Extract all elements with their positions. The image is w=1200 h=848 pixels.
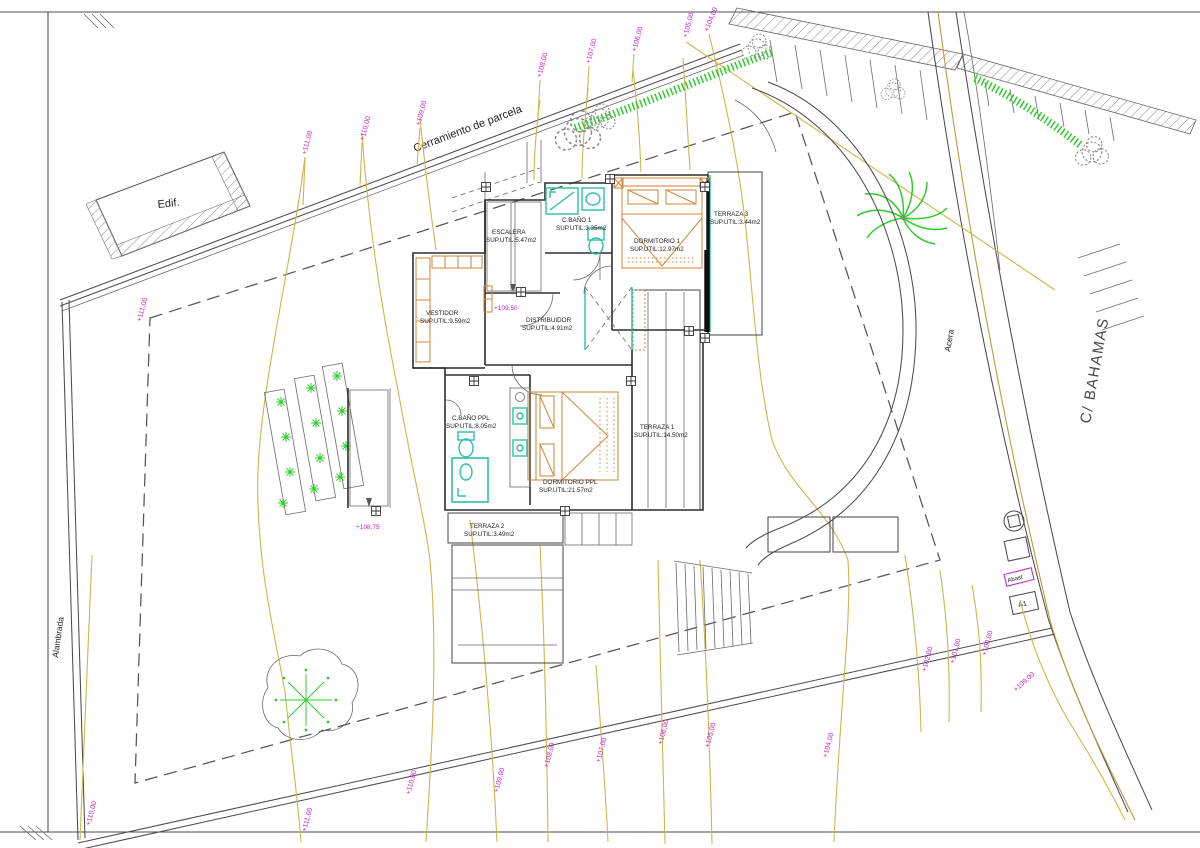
- room-name: VESTIDOR: [426, 310, 459, 317]
- elevation-label: +110,00: [85, 800, 98, 826]
- room-area: SUP.UTIL:8.05m2: [446, 423, 497, 430]
- elevation-label: +109,00: [1013, 671, 1037, 693]
- neighbor-building: Edif.: [86, 152, 250, 259]
- floor-level-label: +108,75: [356, 524, 380, 531]
- street-name-label: C/ BAHAMAS: [1077, 316, 1112, 425]
- manhole-icon: [1004, 511, 1024, 531]
- plant-icon: [285, 467, 295, 477]
- perimeter-fence: Cerramiento de parcela Alambrada: [50, 44, 1055, 848]
- platform: [768, 517, 830, 552]
- utility-box-icon: [1004, 537, 1030, 561]
- room-name: DORMITORIO 1: [634, 238, 681, 245]
- door-arcs: [446, 253, 612, 415]
- bed-icon: [528, 392, 618, 480]
- wardrobe: [416, 256, 492, 362]
- wall-marker: [606, 175, 615, 184]
- street-ticks: [1078, 244, 1144, 330]
- plant-icon: [332, 371, 342, 381]
- frame-hatch-bottomleft: [20, 826, 52, 840]
- plant-icon: [281, 432, 291, 442]
- contour-labels-bottom: +110,00 +111,00 +110,00 +109,00 +108,00 …: [85, 719, 835, 833]
- fence-west: [62, 300, 85, 840]
- elevation-label: +107,00: [585, 38, 598, 65]
- interior-stair: [487, 202, 541, 292]
- tree-icon: [556, 111, 601, 150]
- room-area: SUP.UTIL:4.91m2: [522, 325, 573, 332]
- elevation-label: +108,00: [543, 742, 556, 769]
- elevation-label: +111,00: [301, 130, 314, 156]
- room-area: SUP.UTIL:3.49m2: [464, 531, 515, 538]
- plant-icon: [278, 498, 288, 508]
- bed-icon: [614, 178, 709, 268]
- elevation-label: +105,00: [704, 722, 717, 749]
- elevation-label: +102,00: [921, 646, 934, 673]
- terrace-2: [448, 513, 563, 543]
- plant-icon: [311, 418, 321, 428]
- setback-line: [135, 112, 940, 783]
- elevation-label: +106,00: [631, 26, 644, 53]
- slope-ramp: [674, 561, 753, 655]
- elevation-label: +109,00: [493, 767, 506, 794]
- wall-marker: [482, 183, 491, 192]
- house-plan: ESCALERA SUP.UTIL:5.47m2 C.BAÑO 1 SUP.UT…: [348, 140, 762, 663]
- marker-box: A1: [1009, 591, 1038, 614]
- elevation-label: +110,00: [359, 115, 372, 141]
- elevation-label: +107,00: [595, 737, 608, 764]
- room-area: SUP.UTIL:12.97m2: [630, 246, 684, 253]
- manhole-grate-icon: [1007, 514, 1020, 527]
- bush-icon: [263, 649, 358, 740]
- left-fence-label: Alambrada: [50, 616, 66, 658]
- plant-icon: [306, 383, 316, 393]
- elevation-label: +101,00: [949, 638, 962, 665]
- wall-marker: [517, 288, 526, 297]
- plant-icon: [335, 472, 345, 482]
- room-name: TERRAZA 2: [470, 523, 505, 530]
- vegetation: [263, 34, 1109, 740]
- room-area: SUP.UTIL:5.47m2: [486, 237, 537, 244]
- room-name: TERRAZA 3: [714, 211, 749, 218]
- frame-hatch-topleft: [84, 14, 114, 28]
- room-area: SUP.UTIL:3.44m2: [710, 219, 761, 226]
- room-name: C.BAÑO PPL: [452, 413, 490, 422]
- exterior-stair: [348, 388, 390, 508]
- lower-patio: [452, 545, 563, 663]
- elevation-label: +104,00: [822, 732, 835, 759]
- room-area: SUP.UTIL:21.57m2: [539, 487, 593, 494]
- room-name: DISTRIBUIDOR: [526, 317, 572, 324]
- wall-marker: [701, 183, 710, 192]
- wall-marker: [685, 327, 694, 336]
- plant-icon: [315, 453, 325, 463]
- curb-inner-south: [1048, 618, 1128, 812]
- contour-labels-top: +111,00 +110,00 +109,00 +108,00 +107,00 …: [301, 6, 719, 155]
- shrub-icon: [881, 79, 905, 100]
- elevation-label: +105,00: [682, 12, 695, 39]
- plant-icon: [337, 406, 347, 416]
- contour-lines: [80, 34, 1125, 844]
- water-supply-box: Abast: [1004, 568, 1034, 586]
- room-area: SUP.UTIL:9.59m2: [420, 318, 471, 325]
- plant-icon: [276, 397, 286, 407]
- light-shaft: [585, 287, 632, 350]
- floor-level-label: +109,50: [494, 305, 518, 312]
- curb-inner: [928, 12, 1048, 618]
- fence-south: [78, 628, 1055, 848]
- plant-icon: [341, 441, 351, 451]
- room-name: ESCALERA: [492, 229, 526, 236]
- street: Acera C/ BAHAMAS: [928, 12, 1152, 820]
- room-name: C.BAÑO 1: [562, 215, 592, 224]
- room-area: SUP.UTIL:14.50m2: [634, 432, 688, 439]
- contour-labels-left: +111,00: [136, 297, 149, 323]
- hedge: [575, 52, 772, 128]
- sidewalk-label: Acera: [942, 328, 956, 352]
- street-contour: [938, 12, 1135, 820]
- elevation-label: +109,00: [415, 100, 428, 127]
- driveway: [674, 82, 916, 655]
- elevation-label: +111,00: [301, 807, 314, 833]
- wall-marker: [470, 377, 479, 386]
- wall-marker: [701, 334, 710, 343]
- curb-outer: [956, 12, 1152, 810]
- elevation-label: +110,00: [405, 769, 418, 795]
- terrain-line: [709, 34, 849, 842]
- elevation-label: +104,00: [703, 6, 719, 32]
- fence-label: Cerramiento de parcela: [412, 103, 525, 155]
- plant-icon: [309, 484, 319, 494]
- room-name: TERRAZA 1: [640, 424, 675, 431]
- marker-label: A1: [1018, 600, 1028, 609]
- wall-marker: [372, 507, 381, 516]
- shrub-icon: [1076, 137, 1109, 166]
- wall-marker: [561, 507, 570, 516]
- elevation-label: +108,00: [536, 52, 549, 79]
- wall-marker: [627, 377, 636, 386]
- master-bath-vanity: [510, 388, 530, 487]
- room-area: SUP.UTIL:3.35m2: [556, 225, 607, 232]
- room-name: DORMITORIO PPL: [543, 479, 598, 486]
- elevation-label: +106,00: [657, 719, 670, 746]
- building-label: Edif.: [157, 197, 180, 211]
- elevation-label: +111,00: [136, 297, 149, 323]
- site-plan-sheet: Edif. Cerramiento de parcela Alambrada A…: [0, 0, 1200, 848]
